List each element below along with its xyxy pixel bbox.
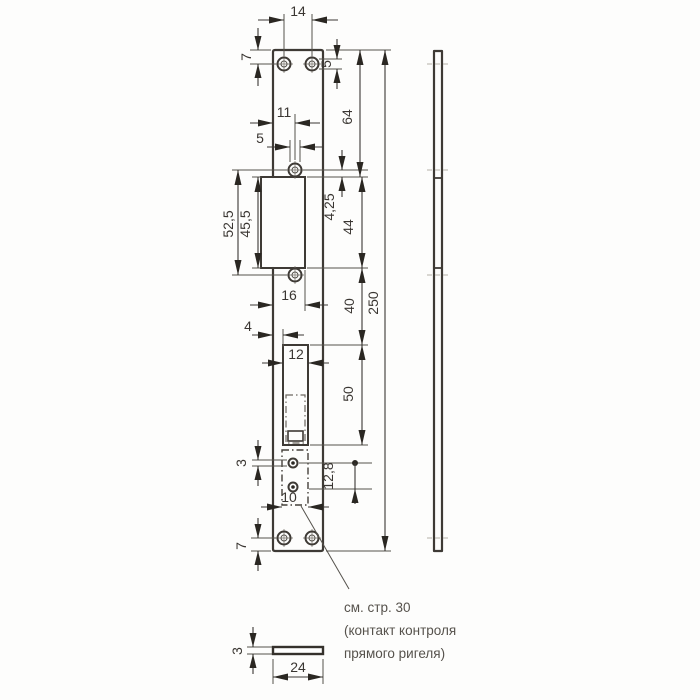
technical-drawing: 14 7 5 64 250 11 5 52,5 45,5 4,25 44 16 … bbox=[0, 0, 700, 700]
dim-mid-hole-diameter: 5 bbox=[256, 130, 264, 146]
dim-overall-length: 250 bbox=[365, 291, 381, 315]
dim-plate-thickness: 3 bbox=[229, 647, 245, 655]
dim-contact-hole-diameter: 3 bbox=[233, 459, 249, 467]
drawing-canvas: 14 7 5 64 250 11 5 52,5 45,5 4,25 44 16 … bbox=[0, 0, 700, 700]
dim-plate-width: 24 bbox=[290, 659, 306, 675]
dim-mid-hole-spacing: 52,5 bbox=[220, 210, 236, 237]
dim-edge-to-opening-right: 16 bbox=[281, 287, 297, 303]
bottom-profile bbox=[273, 647, 323, 654]
contact-element bbox=[288, 431, 303, 441]
dim-edge-to-mid-hole: 11 bbox=[277, 104, 292, 120]
note-line-2: (контакт контроля bbox=[344, 623, 456, 638]
dim-lip-height: 45,5 bbox=[237, 210, 253, 237]
note-line-3: прямого ригеля) bbox=[344, 646, 445, 661]
note-text: см. стр. 30 (контакт контроля прямого ри… bbox=[344, 600, 456, 661]
dim-top-hole-diameter: 5 bbox=[318, 60, 334, 68]
dim-cutout-height: 50 bbox=[340, 386, 356, 402]
extension-lines bbox=[232, 14, 391, 684]
side-view bbox=[427, 51, 449, 551]
dim-contact-box-width: 10 bbox=[281, 489, 297, 505]
dim-top-to-opening: 64 bbox=[339, 109, 355, 125]
bottom-screw-holes bbox=[275, 529, 321, 547]
dim-bottom-edge-to-hole: 7 bbox=[233, 542, 249, 550]
dim-hole-to-opening-offset: 4,25 bbox=[321, 193, 337, 220]
dim-opening-to-cutout: 40 bbox=[341, 298, 357, 314]
contact-holes bbox=[289, 459, 298, 492]
dimension-labels: 14 7 5 64 250 11 5 52,5 45,5 4,25 44 16 … bbox=[220, 3, 381, 675]
side-profile bbox=[434, 51, 442, 551]
dim-cutout-width: 12 bbox=[288, 346, 304, 362]
note-line-1: см. стр. 30 bbox=[344, 600, 411, 615]
dim-top-hole-spacing: 14 bbox=[290, 3, 306, 19]
bolt-position-outline bbox=[286, 395, 305, 443]
dim-contact-hole-spacing: 12,8 bbox=[320, 462, 336, 489]
dimension-lines bbox=[235, 17, 389, 681]
top-screw-holes bbox=[275, 55, 321, 73]
dim-opening-height: 44 bbox=[340, 219, 356, 235]
leader-line bbox=[301, 506, 349, 589]
latch-opening bbox=[261, 177, 305, 268]
middle-screw-holes bbox=[286, 161, 304, 284]
dim-edge-to-cutout: 4 bbox=[244, 318, 252, 334]
bottom-view bbox=[273, 647, 323, 654]
dim-top-edge-to-hole: 7 bbox=[238, 53, 254, 61]
